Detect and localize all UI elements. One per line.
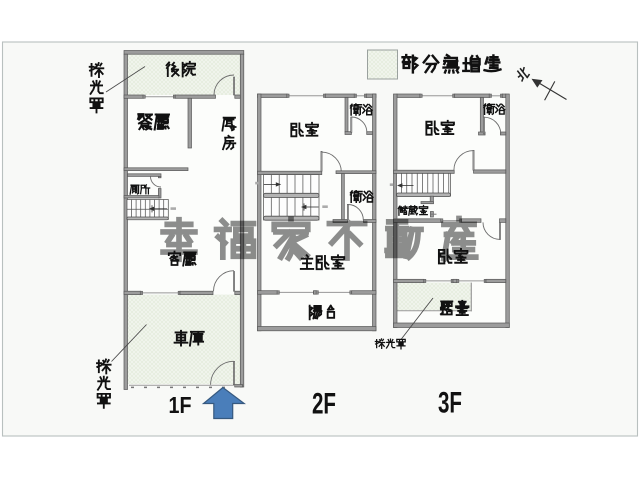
svg-text:3F: 3F: [438, 387, 462, 420]
svg-text:1F: 1F: [169, 392, 192, 418]
svg-text:2F: 2F: [312, 388, 336, 421]
